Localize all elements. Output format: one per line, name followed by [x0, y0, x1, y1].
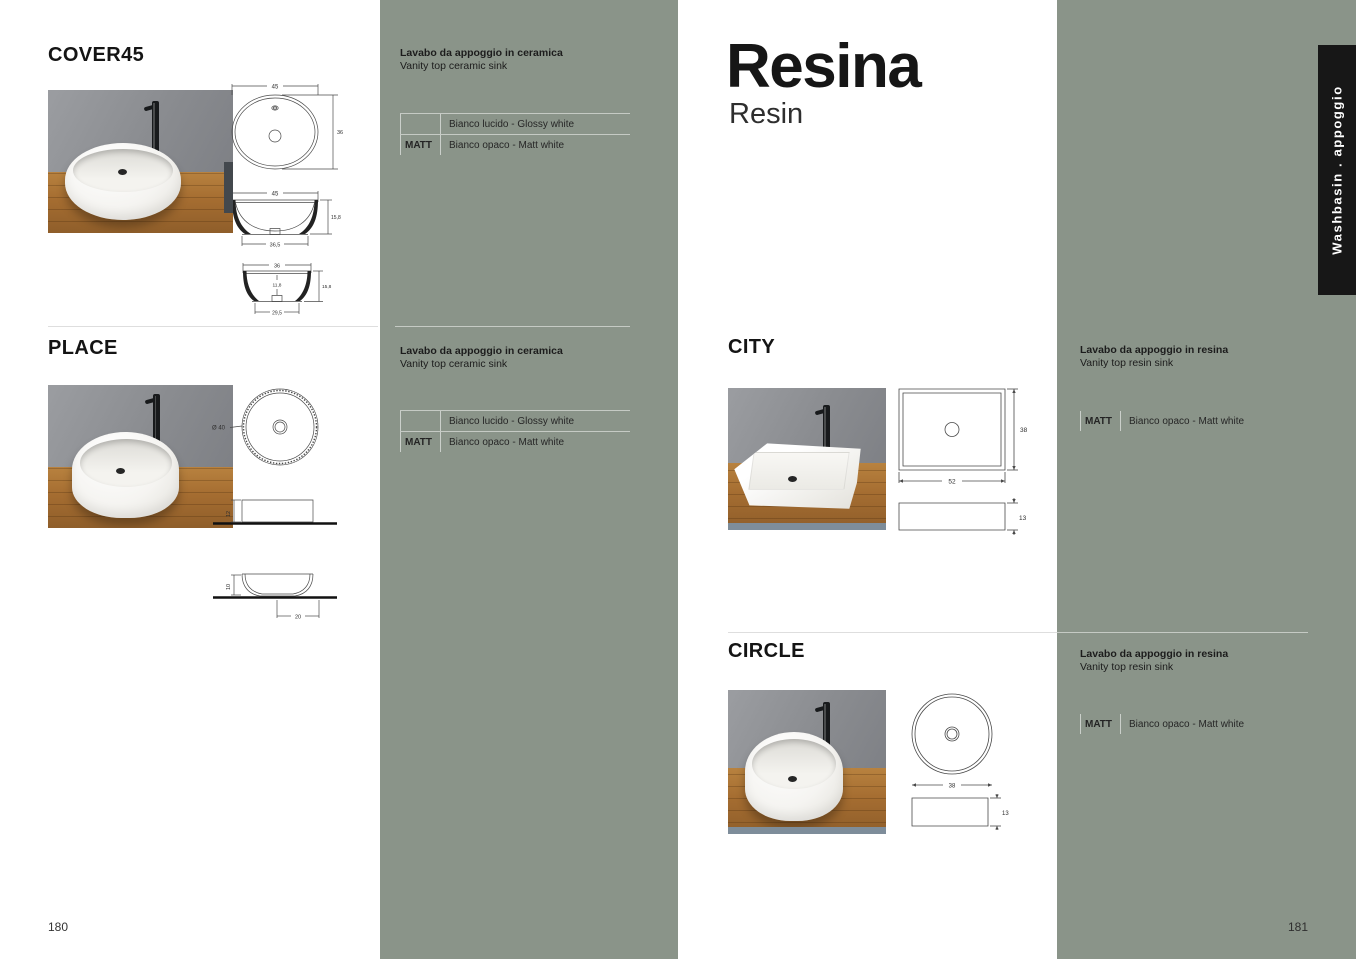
cover45-finish-table: Bianco lucido - Glossy white MATT Bianco… — [400, 113, 630, 155]
description-en: Vanity top ceramic sink — [400, 60, 507, 72]
description-en: Vanity top resin sink — [1080, 357, 1173, 369]
finish-label — [400, 411, 440, 431]
dimension-side-base: 29,5 — [255, 303, 299, 317]
city-top-view-drawing: 38 52 — [892, 382, 1034, 492]
finish-value: Bianco opaco - Matt white — [1120, 411, 1310, 431]
dimension-width: 52 — [899, 472, 1005, 486]
dimension-depth: 38 — [1007, 389, 1028, 470]
cover45-front-view-drawing: 45 15,8 36,5 — [222, 188, 352, 252]
dimension-top-width: 45 — [232, 84, 318, 95]
finish-value: Bianco opaco - Matt white — [440, 432, 630, 452]
place-description: Lavabo da appoggio in ceramica Vanity to… — [400, 345, 610, 371]
drain-trap-icon — [270, 229, 280, 235]
dim-label: Ø 40 — [212, 426, 226, 432]
dim-label: 45 — [272, 85, 279, 91]
dim-label: 52 — [948, 479, 956, 486]
dim-label: 15,8 — [322, 284, 332, 290]
dim-label: 36,5 — [270, 243, 281, 249]
drain-icon — [945, 423, 959, 437]
right-page-green-panel — [1057, 0, 1356, 959]
dimension-height: 13 — [1007, 498, 1027, 535]
finish-row: MATT Bianco opaco - Matt white — [1080, 714, 1310, 734]
circle-side-view-drawing: 13 — [899, 794, 1021, 834]
photo-base-strip — [728, 827, 886, 834]
dim-label: 38 — [949, 784, 956, 790]
finish-value: Bianco lucido - Glossy white — [440, 114, 630, 134]
catalog-spread: COVER45 45 36 45 — [0, 0, 1356, 959]
dim-label: 12 — [226, 511, 232, 517]
chapter-tab: Washbasin . appoggio — [1318, 45, 1356, 295]
description-it: Lavabo da appoggio in resina — [1080, 344, 1290, 357]
description-en: Vanity top ceramic sink — [400, 358, 507, 370]
city-photo — [728, 388, 886, 530]
dimension-top-depth: 36 — [282, 95, 343, 169]
description-it: Lavabo da appoggio in ceramica — [400, 47, 610, 60]
dimension-diameter: 38 — [912, 783, 992, 789]
drain-trap-icon — [272, 296, 282, 302]
circle-top-view-drawing: 38 — [899, 687, 1021, 795]
circle-description: Lavabo da appoggio in resina Vanity top … — [1080, 648, 1290, 674]
description-en: Vanity top resin sink — [1080, 661, 1173, 673]
drain-icon — [945, 727, 959, 741]
dim-label: 36 — [337, 130, 343, 136]
dimension-base-20: 20 — [277, 600, 319, 621]
section-divider — [1057, 632, 1308, 633]
dimension-front-width: 45 — [232, 191, 318, 202]
cover45-description: Lavabo da appoggio in ceramica Vanity to… — [400, 47, 610, 73]
chapter-tab-label: Washbasin . appoggio — [1330, 85, 1345, 254]
finish-row: Bianco lucido - Glossy white — [400, 113, 630, 134]
drain-image — [788, 476, 797, 482]
finish-label: MATT — [400, 432, 440, 452]
cover45-top-view-drawing: 45 36 — [222, 80, 352, 188]
dim-label: 29,5 — [272, 311, 282, 317]
city-description: Lavabo da appoggio in resina Vanity top … — [1080, 344, 1290, 370]
description-it: Lavabo da appoggio in resina — [1080, 648, 1290, 661]
cover45-sink-image — [65, 143, 182, 220]
product-title-place: PLACE — [48, 337, 118, 360]
dimension-side-inner-height: 11,8 — [273, 275, 282, 295]
finish-row: MATT Bianco opaco - Matt white — [1080, 411, 1310, 431]
page-number-left: 180 — [48, 920, 68, 934]
description-it: Lavabo da appoggio in ceramica — [400, 345, 610, 358]
finish-row: MATT Bianco opaco - Matt white — [400, 431, 630, 452]
circle-photo — [728, 690, 886, 834]
finish-value: Bianco lucido - Glossy white — [440, 411, 630, 431]
drain-icon — [273, 420, 287, 434]
place-side-view2-drawing: 10 20 — [212, 566, 338, 626]
finish-label: MATT — [400, 135, 440, 155]
section-divider — [395, 326, 630, 327]
hatched-rim — [244, 391, 317, 464]
dim-label: 11,8 — [273, 283, 282, 289]
faucet-hole-icon — [272, 106, 278, 110]
product-title-cover45: COVER45 — [48, 44, 144, 67]
dim-label: 36 — [274, 264, 280, 270]
dimension-side-width: 36 — [243, 263, 311, 273]
place-finish-table: Bianco lucido - Glossy white MATT Bianco… — [400, 410, 630, 452]
finish-value: Bianco opaco - Matt white — [440, 135, 630, 155]
dim-label: 15,8 — [331, 215, 341, 221]
collection-subtitle: Resin — [729, 100, 803, 129]
finish-label — [400, 114, 440, 134]
finish-value: Bianco opaco - Matt white — [1120, 714, 1310, 734]
dimension-diameter: Ø 40 — [212, 426, 242, 432]
dim-label: 45 — [272, 192, 279, 198]
photo-shadow — [224, 162, 233, 213]
drain-image — [118, 169, 127, 175]
photo-base-strip — [728, 523, 886, 530]
finish-row: MATT Bianco opaco - Matt white — [400, 134, 630, 155]
place-sink-image — [72, 432, 179, 518]
dim-label: 38 — [1020, 427, 1028, 434]
city-finish-table: MATT Bianco opaco - Matt white — [1080, 411, 1310, 431]
section-divider — [728, 632, 1057, 633]
dim-label: 13 — [1019, 515, 1027, 522]
cover45-side-view-drawing: 36 11,8 15,8 29,5 — [235, 260, 339, 322]
cover45-photo — [48, 90, 233, 233]
product-title-city: CITY — [728, 336, 775, 359]
dimension-height-10: 10 — [226, 575, 241, 595]
dim-label: 13 — [1002, 811, 1009, 817]
dim-label: 20 — [295, 615, 301, 621]
collection-title: Resina — [726, 36, 920, 98]
dimension-front-base: 36,5 — [242, 236, 308, 249]
product-title-circle: CIRCLE — [728, 640, 805, 663]
dimension-height-12: 12 — [226, 500, 241, 522]
finish-row: Bianco lucido - Glossy white — [400, 410, 630, 431]
finish-label: MATT — [1080, 714, 1120, 734]
dim-label: 10 — [226, 584, 232, 590]
page-number-right: 181 — [1288, 920, 1308, 934]
drain-icon — [269, 130, 281, 142]
finish-label: MATT — [1080, 411, 1120, 431]
city-side-view-drawing: 13 — [892, 497, 1034, 537]
place-top-view-drawing: Ø 40 — [204, 382, 336, 474]
place-side-view1-drawing: 12 — [212, 492, 338, 530]
dimension-height: 13 — [990, 794, 1009, 830]
circle-finish-table: MATT Bianco opaco - Matt white — [1080, 714, 1310, 734]
section-divider — [48, 326, 378, 327]
